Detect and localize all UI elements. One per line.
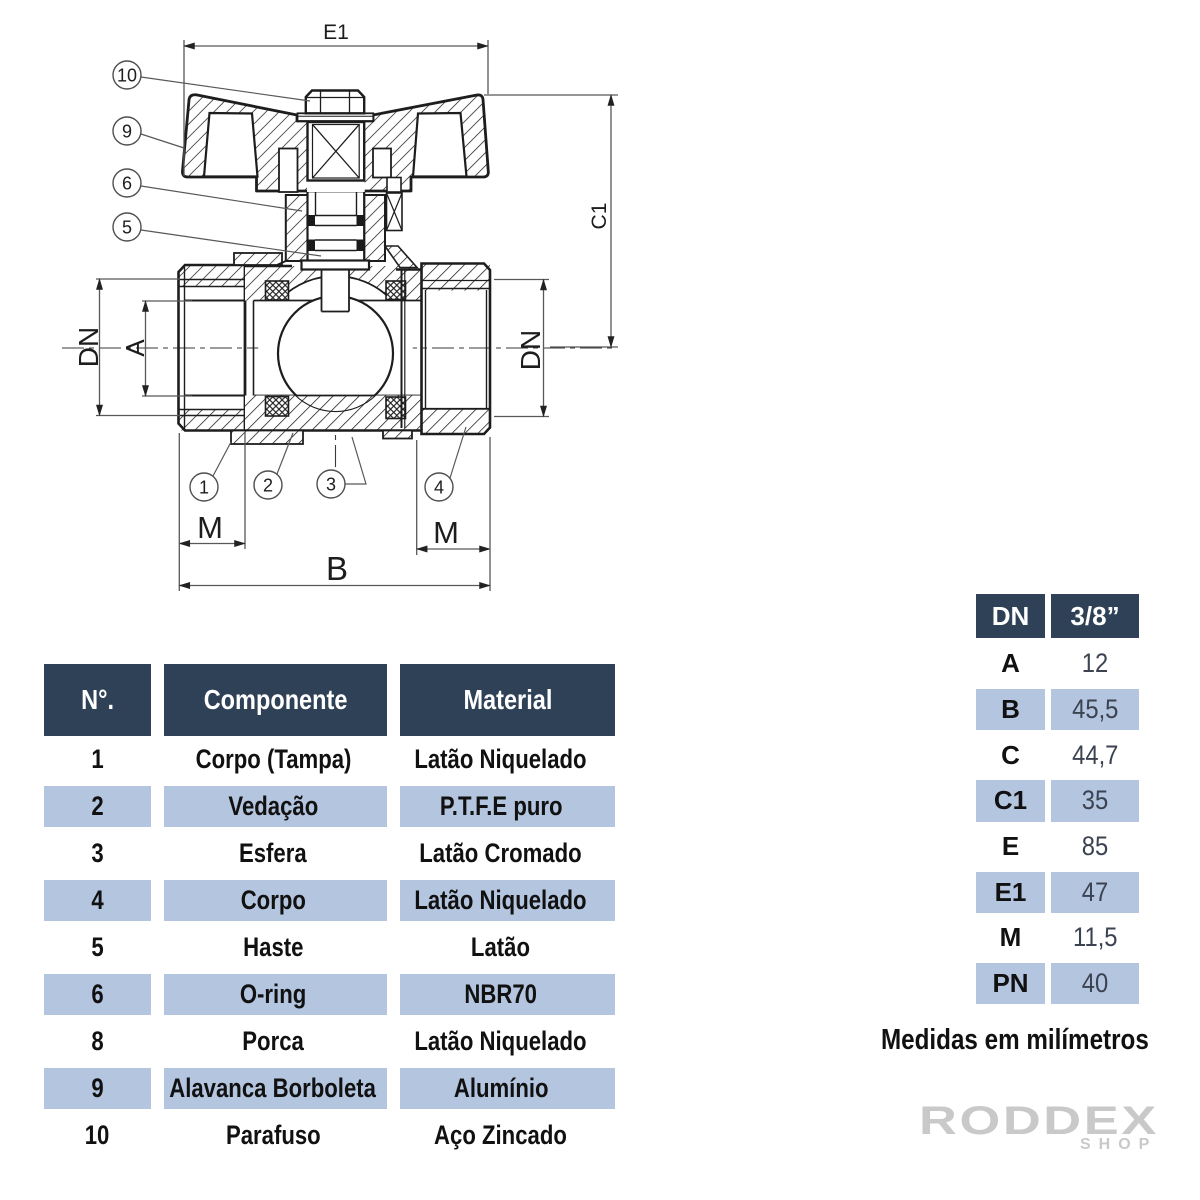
svg-text:M: M xyxy=(433,515,459,550)
svg-text:M: M xyxy=(197,510,223,545)
svg-text:4: 4 xyxy=(434,478,444,498)
svg-text:A: A xyxy=(120,339,150,357)
svg-text:5: 5 xyxy=(122,218,132,238)
svg-text:3: 3 xyxy=(326,475,336,495)
svg-text:DN: DN xyxy=(73,327,104,367)
svg-text:6: 6 xyxy=(122,174,132,194)
svg-text:DN: DN xyxy=(515,330,546,370)
svg-text:1: 1 xyxy=(199,478,209,498)
svg-text:10: 10 xyxy=(117,66,137,86)
svg-text:E1: E1 xyxy=(323,21,349,44)
svg-text:2: 2 xyxy=(263,476,273,496)
svg-text:B: B xyxy=(326,550,348,587)
svg-text:9: 9 xyxy=(122,122,132,142)
svg-text:C1: C1 xyxy=(588,203,611,230)
